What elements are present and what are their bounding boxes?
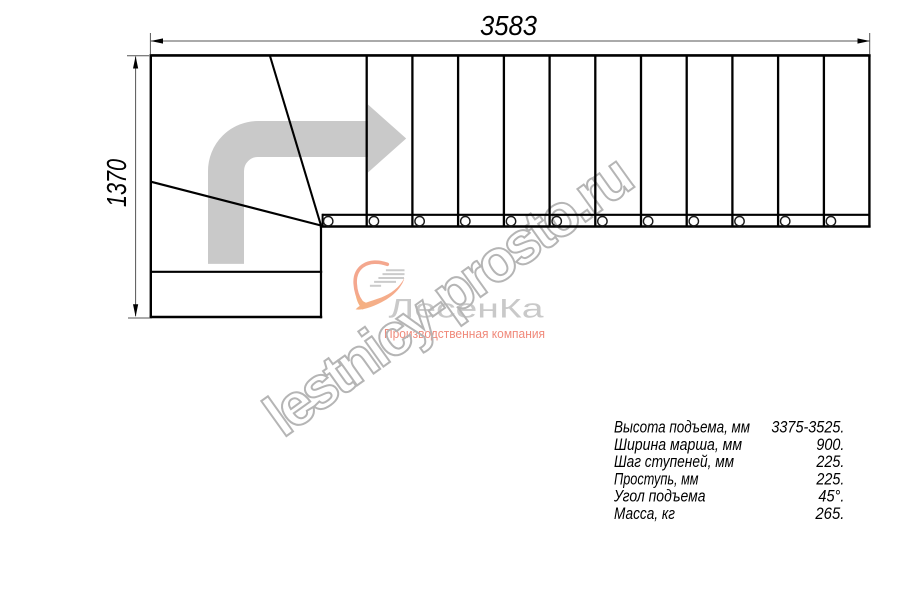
svg-text:Ширина марша, мм: Ширина марша, мм xyxy=(614,436,742,454)
svg-text:Высота подъема, мм: Высота подъема, мм xyxy=(614,419,750,437)
svg-text:Масса, кг: Масса, кг xyxy=(614,505,675,523)
svg-text:3583: 3583 xyxy=(480,10,538,41)
svg-text:Шаг ступеней, мм: Шаг ступеней, мм xyxy=(614,453,734,471)
svg-text:3375-3525.: 3375-3525. xyxy=(771,419,844,437)
svg-text:265.: 265. xyxy=(814,505,844,523)
svg-text:900.: 900. xyxy=(816,436,844,454)
svg-text:1370: 1370 xyxy=(101,158,132,207)
svg-text:225.: 225. xyxy=(816,453,845,471)
svg-text:225.: 225. xyxy=(816,470,845,488)
svg-text:45°.: 45°. xyxy=(818,488,844,506)
svg-text:Проступь, мм: Проступь, мм xyxy=(614,470,699,488)
svg-text:Угол подъема: Угол подъема xyxy=(613,488,705,506)
